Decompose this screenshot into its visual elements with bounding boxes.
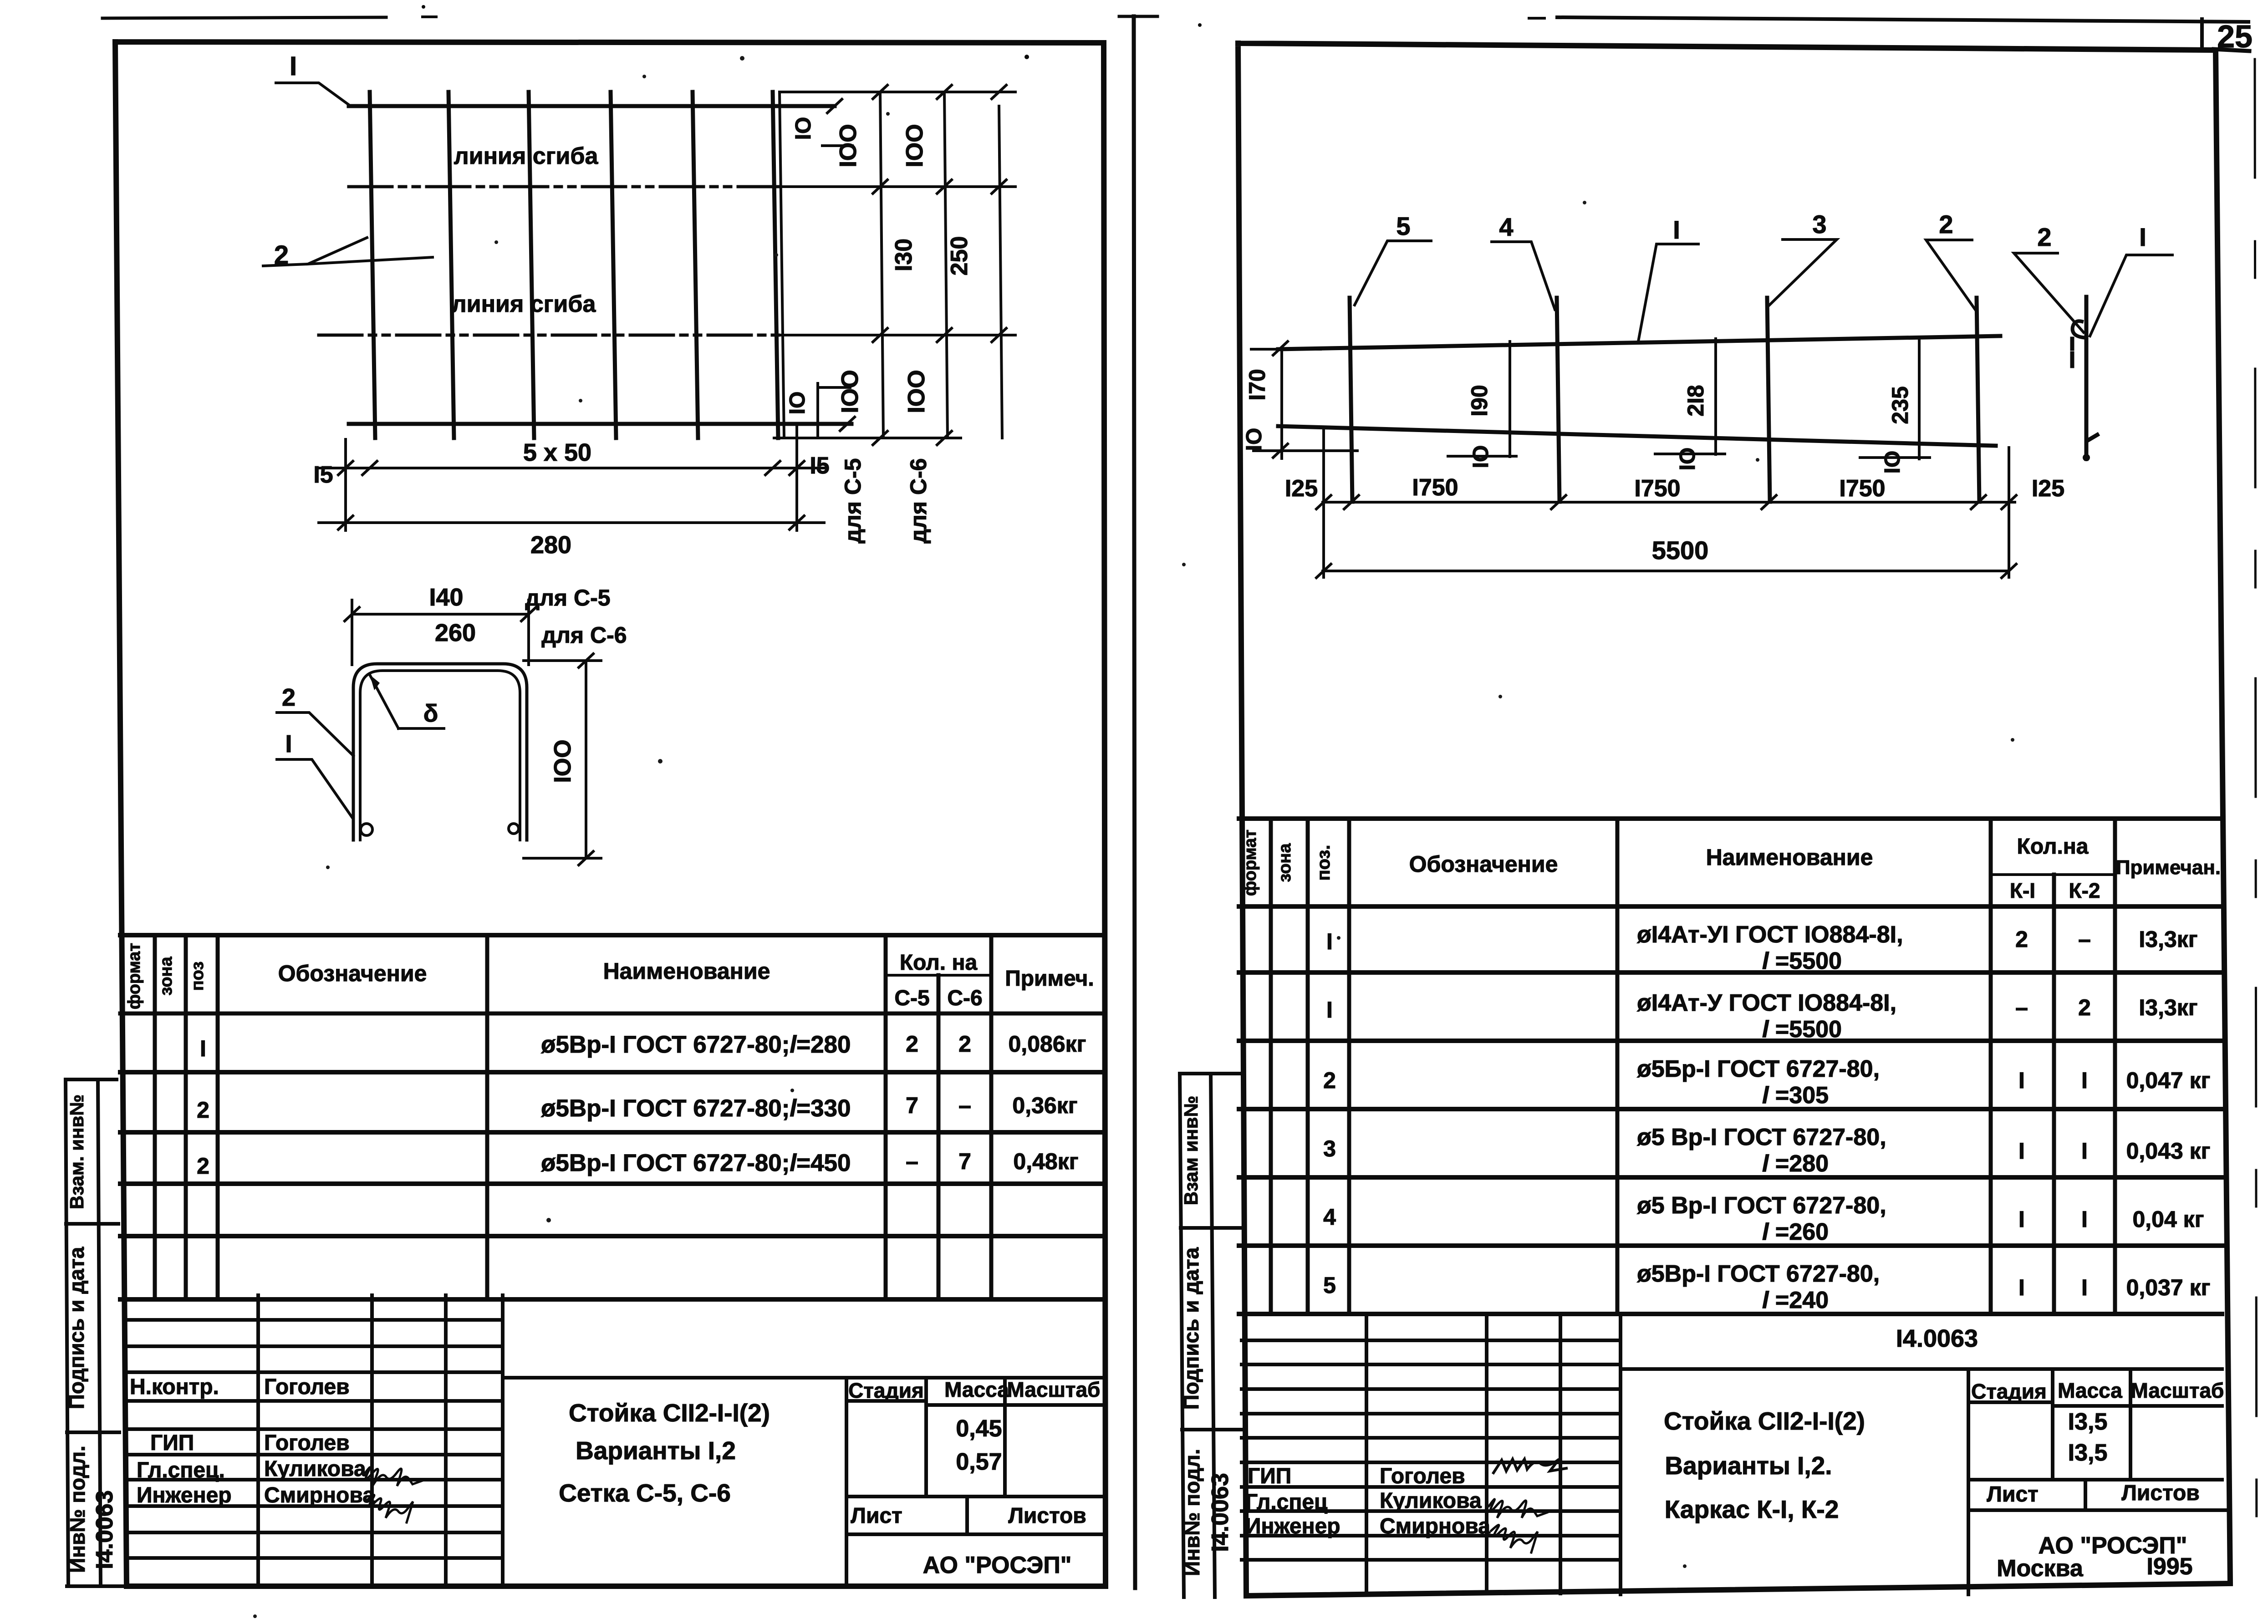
- svg-text:С-5: С-5: [894, 986, 929, 1010]
- svg-text:2: 2: [1323, 1068, 1336, 1093]
- svg-text:I: I: [2081, 1207, 2088, 1232]
- svg-text:I30: I30: [891, 239, 917, 271]
- svg-text:0,037 кг: 0,037 кг: [2126, 1275, 2211, 1300]
- svg-text:I70: I70: [1244, 369, 1270, 401]
- svg-text:Листов: Листов: [2121, 1481, 2200, 1505]
- svg-text:260: 260: [435, 619, 476, 647]
- svg-text:зона: зона: [157, 957, 176, 996]
- svg-text:I25: I25: [2032, 475, 2064, 502]
- svg-text:Смирнова: Смирнова: [264, 1483, 375, 1507]
- svg-text:2: 2: [2037, 223, 2051, 251]
- svg-text:Стадия: Стадия: [1971, 1380, 2047, 1403]
- svg-text:7: 7: [906, 1093, 918, 1118]
- svg-text:I: I: [2081, 1275, 2088, 1300]
- svg-text:Обозначение: Обозначение: [1409, 851, 1558, 877]
- svg-text:Кол.на: Кол.на: [2017, 835, 2089, 859]
- svg-text:I750: I750: [1839, 475, 1885, 502]
- svg-text:I: I: [1326, 929, 1333, 954]
- svg-text:поз: поз: [188, 962, 207, 991]
- svg-text:I: I: [2018, 1207, 2025, 1232]
- svg-text:линия сгиба: линия сгиба: [452, 291, 596, 317]
- svg-text:250: 250: [946, 236, 973, 276]
- svg-text:I3,5: I3,5: [2068, 1409, 2108, 1435]
- svg-text:Гоголев: Гоголев: [1380, 1464, 1465, 1488]
- svg-text:Масштаб: Масштаб: [1007, 1378, 1101, 1401]
- svg-text:I: I: [2081, 1068, 2088, 1093]
- svg-text:ø5Вр-I ГОСТ 6727-80,: ø5Вр-I ГОСТ 6727-80,: [1637, 1261, 1880, 1287]
- svg-text:Подпись и дата: Подпись и дата: [1179, 1247, 1203, 1410]
- svg-text:235: 235: [1887, 386, 1913, 424]
- svg-text:IO: IO: [1881, 451, 1905, 474]
- svg-text:Подпись и дата: Подпись и дата: [65, 1247, 88, 1409]
- svg-text:ø5 Вр-I ГОСТ 6727-80,: ø5 Вр-I ГОСТ 6727-80,: [1637, 1124, 1886, 1151]
- svg-text:IO: IO: [785, 392, 810, 415]
- svg-text:для С-6: для С-6: [541, 622, 627, 648]
- svg-text:2: 2: [2015, 927, 2028, 952]
- svg-text:I25: I25: [1285, 475, 1318, 502]
- svg-text:l =280: l =280: [1762, 1151, 1829, 1177]
- svg-text:Варианты I,2: Варианты I,2: [576, 1436, 736, 1465]
- svg-text:5: 5: [1323, 1273, 1336, 1298]
- svg-text:3: 3: [1323, 1136, 1336, 1161]
- svg-text:I3,3кг: I3,3кг: [2139, 927, 2197, 952]
- svg-text:0,04 кг: 0,04 кг: [2132, 1207, 2204, 1232]
- svg-text:ø5Вр-I ГОСТ 6727-80;l=450: ø5Вр-I ГОСТ 6727-80;l=450: [541, 1150, 851, 1176]
- svg-text:IO: IO: [1469, 445, 1493, 468]
- svg-text:0,047 кг: 0,047 кг: [2126, 1068, 2211, 1093]
- svg-text:Стойка СII2-I-I(2): Стойка СII2-I-I(2): [569, 1399, 770, 1427]
- svg-text:l =260: l =260: [1762, 1219, 1829, 1245]
- svg-text:–: –: [958, 1093, 971, 1118]
- svg-text:IOO: IOO: [837, 370, 863, 413]
- svg-text:2I8: 2I8: [1683, 385, 1708, 417]
- svg-text:0,57: 0,57: [956, 1449, 1002, 1475]
- svg-text:2: 2: [282, 684, 296, 711]
- svg-text:l =5500: l =5500: [1762, 948, 1842, 974]
- svg-text:I4.0063: I4.0063: [1207, 1473, 1233, 1552]
- svg-text:Н.контр.: Н.контр.: [130, 1375, 219, 1399]
- svg-text:ГИП: ГИП: [1248, 1464, 1291, 1488]
- svg-text:l =240: l =240: [1762, 1287, 1829, 1313]
- svg-text:0,48кг: 0,48кг: [1013, 1149, 1078, 1174]
- svg-text:IOO: IOO: [835, 124, 861, 167]
- svg-text:δ: δ: [423, 700, 438, 727]
- svg-text:I: I: [2139, 223, 2146, 251]
- svg-text:К-I: К-I: [2010, 879, 2035, 902]
- svg-text:I3,5: I3,5: [2068, 1440, 2108, 1466]
- svg-text:ø5Бр-I ГОСТ 6727-80,: ø5Бр-I ГОСТ 6727-80,: [1637, 1056, 1880, 1082]
- svg-text:АО "РОСЭП": АО "РОСЭП": [923, 1552, 1072, 1578]
- svg-text:I5: I5: [313, 462, 333, 488]
- svg-text:Инженер: Инженер: [1245, 1514, 1340, 1538]
- svg-text:–: –: [906, 1149, 918, 1174]
- svg-text:К-2: К-2: [2069, 879, 2100, 902]
- svg-text:для С-5: для С-5: [840, 458, 866, 543]
- svg-text:280: 280: [530, 531, 571, 559]
- svg-text:0,36кг: 0,36кг: [1012, 1093, 1077, 1118]
- svg-text:5: 5: [1396, 212, 1410, 240]
- svg-text:Лист: Лист: [1987, 1482, 2038, 1507]
- svg-text:Каркас К-I, К-2: Каркас К-I, К-2: [1665, 1495, 1839, 1523]
- svg-text:I: I: [200, 1036, 206, 1061]
- svg-text:0,043 кг: 0,043 кг: [2126, 1138, 2211, 1164]
- svg-text:зона: зона: [1275, 843, 1295, 882]
- svg-text:Наименование: Наименование: [603, 958, 770, 984]
- svg-text:5500: 5500: [1652, 536, 1709, 565]
- svg-text:4: 4: [1499, 213, 1513, 241]
- svg-text:линия сгиба: линия сгиба: [454, 143, 599, 169]
- svg-text:2: 2: [958, 1031, 971, 1057]
- svg-text:5 x 50: 5 x 50: [523, 439, 591, 466]
- svg-text:I: I: [2081, 1138, 2088, 1164]
- svg-text:–: –: [2015, 995, 2028, 1020]
- svg-text:поз.: поз.: [1314, 845, 1334, 881]
- svg-text:0,45: 0,45: [956, 1415, 1002, 1442]
- svg-text:I995: I995: [2146, 1553, 2192, 1580]
- svg-text:4: 4: [1323, 1204, 1336, 1230]
- svg-text:Примечан.: Примечан.: [2116, 856, 2221, 879]
- svg-text:l =305: l =305: [1762, 1082, 1829, 1109]
- svg-text:Гл.спец: Гл.спец: [1245, 1490, 1328, 1514]
- svg-text:IOO: IOO: [903, 370, 930, 413]
- svg-text:I40: I40: [429, 584, 463, 611]
- svg-text:I: I: [285, 730, 292, 758]
- svg-text:С-6: С-6: [947, 986, 982, 1010]
- svg-text:Смирнова: Смирнова: [1380, 1514, 1490, 1538]
- svg-text:Листов: Листов: [1008, 1504, 1086, 1528]
- svg-text:I: I: [290, 51, 297, 81]
- svg-text:IO: IO: [1676, 448, 1700, 471]
- svg-text:для С-5: для С-5: [525, 585, 610, 611]
- svg-text:для С-6: для С-6: [906, 458, 931, 543]
- svg-text:IOO: IOO: [902, 124, 928, 167]
- svg-text:ø5Вр-I ГОСТ 6727-80;l=280: ø5Вр-I ГОСТ 6727-80;l=280: [541, 1031, 851, 1058]
- svg-text:Лист: Лист: [851, 1504, 902, 1528]
- svg-text:Стадия: Стадия: [848, 1379, 924, 1402]
- svg-text:Взам. инв№: Взам. инв№: [66, 1095, 87, 1209]
- svg-text:Обозначение: Обозначение: [278, 961, 427, 986]
- svg-text:–: –: [2078, 927, 2091, 952]
- svg-text:Примеч.: Примеч.: [1005, 967, 1094, 991]
- svg-text:0,086кг: 0,086кг: [1009, 1031, 1086, 1057]
- svg-text:Инв№ подл.: Инв№ подл.: [66, 1446, 89, 1573]
- svg-text:2: 2: [906, 1031, 918, 1057]
- svg-text:øI4Ат-У ГОСТ IО884-8I,: øI4Ат-У ГОСТ IО884-8I,: [1637, 990, 1896, 1016]
- svg-text:IOO: IOO: [550, 739, 576, 783]
- svg-text:Куликова: Куликова: [1380, 1489, 1482, 1513]
- svg-text:IO: IO: [1242, 428, 1266, 451]
- svg-text:I90: I90: [1467, 385, 1492, 417]
- svg-text:Наименование: Наименование: [1706, 845, 1873, 870]
- svg-text:I750: I750: [1412, 474, 1458, 501]
- svg-text:I: I: [1326, 997, 1333, 1023]
- svg-text:I: I: [1673, 215, 1680, 244]
- svg-text:Сетка С-5, С-6: Сетка С-5, С-6: [559, 1479, 731, 1507]
- svg-text:Куликова: Куликова: [264, 1457, 366, 1481]
- svg-text:I: I: [2018, 1138, 2025, 1164]
- svg-text:I4.0063: I4.0063: [92, 1490, 118, 1569]
- svg-text:I4.0063: I4.0063: [1896, 1325, 1978, 1352]
- svg-text:формат: формат: [1241, 830, 1260, 896]
- svg-text:Инв№ подл.: Инв№ подл.: [1180, 1449, 1204, 1576]
- svg-text:Масса: Масса: [944, 1378, 1009, 1401]
- svg-text:I: I: [2018, 1068, 2025, 1093]
- svg-text:Стойка СII2-I-I(2): Стойка СII2-I-I(2): [1664, 1407, 1865, 1435]
- svg-text:l =5500: l =5500: [1762, 1016, 1842, 1043]
- svg-text:I3,3кг: I3,3кг: [2139, 995, 2197, 1020]
- svg-text:øI4Ат-УI ГОСТ IО884-8I,: øI4Ат-УI ГОСТ IО884-8I,: [1637, 921, 1903, 948]
- svg-text:3: 3: [1812, 210, 1826, 239]
- svg-text:2: 2: [197, 1097, 209, 1123]
- svg-text:I5: I5: [810, 453, 829, 479]
- svg-text:ГИП: ГИП: [150, 1431, 194, 1455]
- svg-text:формат: формат: [125, 943, 144, 1009]
- svg-text:I750: I750: [1634, 475, 1680, 502]
- svg-text:2: 2: [2078, 995, 2091, 1020]
- svg-text:ø5Вр-I ГОСТ 6727-80;l=330: ø5Вр-I ГОСТ 6727-80;l=330: [541, 1095, 851, 1122]
- svg-text:I: I: [2018, 1275, 2025, 1300]
- svg-text:Гоголев: Гоголев: [264, 1431, 350, 1455]
- svg-text:Масса: Масса: [2058, 1379, 2122, 1402]
- svg-text:ø5 Вр-I ГОСТ 6727-80,: ø5 Вр-I ГОСТ 6727-80,: [1637, 1192, 1886, 1219]
- svg-text:Гоголев: Гоголев: [264, 1375, 350, 1399]
- svg-text:2: 2: [1939, 210, 1953, 239]
- svg-text:Варианты I,2.: Варианты I,2.: [1665, 1451, 1832, 1480]
- svg-text:Кол. на: Кол. на: [900, 951, 978, 975]
- svg-text:Масштаб: Масштаб: [2131, 1379, 2224, 1402]
- svg-text:Гл.спец.: Гл.спец.: [137, 1458, 225, 1482]
- svg-text:Инженер: Инженер: [137, 1483, 232, 1507]
- svg-text:2: 2: [197, 1153, 209, 1179]
- svg-text:IO: IO: [791, 117, 815, 140]
- svg-text:Взам инв№: Взам инв№: [1180, 1096, 1202, 1206]
- svg-text:Москва: Москва: [1997, 1555, 2084, 1582]
- svg-text:7: 7: [958, 1149, 971, 1174]
